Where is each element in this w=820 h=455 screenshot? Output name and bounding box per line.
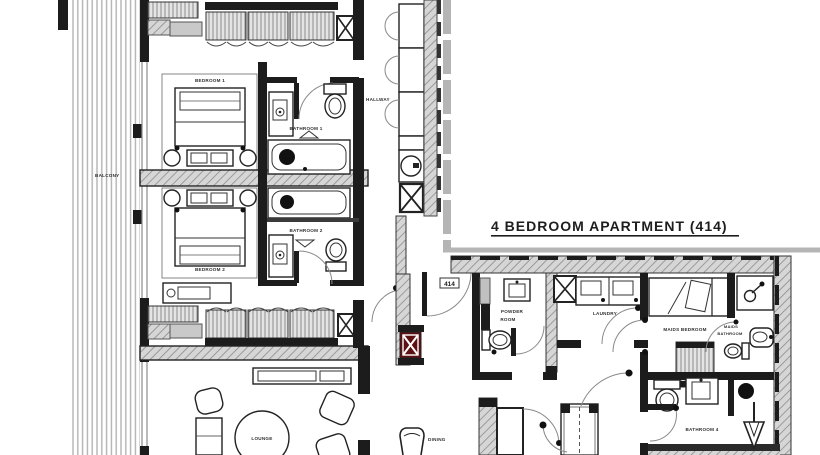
hatch-block [148,20,170,35]
bed-icon [175,88,246,151]
door-swing-arc [372,290,398,322]
hallway-label: HALLWAY [366,97,390,102]
heater-mark [413,163,419,168]
sofa-cushion [248,310,288,338]
armchair-icon [314,432,351,455]
round-table-icon [235,411,289,455]
closet-unit [148,306,198,322]
door-hinge [540,422,547,429]
closet-unit [148,2,198,18]
bathtub-icon [268,131,350,174]
sofa-cushion [290,310,334,338]
entry: 414 [372,216,471,365]
powder-label-2: ROOM [500,317,515,322]
door-swing-arc [650,410,676,441]
bathroom1-label: BATHROOM 1 [289,126,322,131]
shower-icon [737,276,773,310]
wall-cap [479,398,497,407]
wall-cap [398,325,424,332]
balcony-wall-segment [58,0,68,30]
wall-segment [557,340,581,348]
sliding-window [142,62,147,455]
door-opening [353,60,364,78]
laundry-label: LAUNDRY [593,311,617,316]
side-cabinet-icon [196,418,222,455]
bottom-wall-hatch [640,451,780,455]
hallway: HALLWAY [366,0,439,216]
shower-screen [728,380,734,416]
dresser-icon [163,283,231,303]
wall-segment [640,273,648,320]
hall-hatch-wall [424,0,437,216]
bathroom-1: BATHROOM 1 [267,77,359,174]
chair-icon [400,428,424,455]
wall-cap [398,358,424,365]
floor-drain-icon [738,383,754,399]
maids-bath-label-2: BATHROOM [717,331,743,336]
sink-icon [686,378,718,404]
riser-shaft [400,332,421,358]
powder-room: POWDER ROOM [472,273,557,380]
bedroom-1: BEDROOM 1 [162,74,257,170]
duct [480,278,490,304]
wall-segment [267,77,297,83]
wall-segment [472,372,512,380]
door-hinge [642,349,648,355]
cabinet [170,22,202,36]
bathroom-2: BATHROOM 2 [267,188,359,286]
bathroom-4: BATHROOM 4 [640,372,774,455]
duct-dark [481,304,490,330]
sink-icon [504,279,530,301]
corridor-boundary [443,0,820,252]
sofa-scallops [207,42,334,46]
plan-title: 4 BEDROOM APARTMENT (414) [491,218,739,237]
wall-segment [330,77,359,83]
balcony-label: BALCONY [95,173,119,178]
window-wall [140,0,149,455]
sofa-back-rail [205,2,338,10]
wall-cap [546,366,557,374]
door-hinge [642,317,648,323]
balcony: BALCONY [58,0,142,455]
sofa-cushion [248,12,288,40]
bathroom2-label: BATHROOM 2 [289,228,322,233]
bedroom1-label: BEDROOM 1 [195,78,225,83]
slope-arrow-icon [744,402,764,448]
maids-bedroom-label: MAIDS BEDROOM [663,327,706,332]
door-leaf [497,408,523,455]
entry-door-leaf [422,272,427,316]
lounge: LOUNGE [193,346,370,455]
sofa-cushion [206,310,246,338]
powder-label-1: POWDER [501,309,524,314]
plan-title-text: 4 BEDROOM APARTMENT (414) [491,218,728,234]
lounge-label: LOUNGE [251,436,272,441]
tv-console-icon [253,368,351,384]
washer-dryer-icon [576,277,642,305]
door-opening [353,286,364,300]
door-swing-arc [581,373,633,406]
cabinet [170,324,202,338]
bedroom2-label: BEDROOM 2 [195,267,225,272]
toilet-icon [326,239,346,271]
lounge-wall [140,346,368,360]
bathtub-icon [268,188,350,218]
bed-icon [175,208,246,267]
hall-wardrobe-icon [561,404,598,455]
bedroom2-closet-row [148,306,354,346]
armchair-icon [318,389,357,427]
dining-label: DINING [428,437,446,442]
wall-segment [396,216,406,274]
door-leaf [648,404,676,410]
door-leaf [294,83,299,119]
bottom-corridor: DINING [400,370,633,455]
balcony-column [133,210,142,224]
door-swing-arc [516,326,544,354]
threshold-mark [296,240,314,247]
maids-bath-label-1: MAIDS [724,324,738,329]
sink-icon [269,235,293,277]
door-leaf [294,251,299,283]
sink-icon [750,328,773,347]
bathroom4-label: BATHROOM 4 [685,427,718,432]
balcony-column [133,124,142,138]
sofa-cushion [290,12,334,40]
wall-segment [634,340,648,348]
door-leaf [511,328,516,356]
door-hinge [673,405,679,411]
wall-segment [727,273,735,318]
wall-segment [358,346,370,394]
wall-segment [472,273,480,380]
bottom-wall [640,444,780,451]
hall-closets [385,4,424,150]
laundry-wall [546,273,576,374]
floor-plan-drawing: BALCONY BEDROOM 1 [0,0,820,455]
wall-segment [640,443,648,455]
door-hinge [626,370,633,377]
toilet-icon [324,84,346,118]
sofa-back-rail [205,338,338,346]
balcony-decking [70,0,140,455]
wall-segment [140,446,149,455]
wall-segment [640,372,648,410]
foot-bench-icon [164,150,256,166]
hatch-block [148,324,170,339]
door-hinge [734,320,739,325]
top-wardrobe-strip [148,2,354,46]
wall-segment [267,280,297,286]
sofa-cushion [206,12,246,40]
wall-segment [258,62,267,286]
top-wall [451,256,791,273]
floor-plan: BALCONY BEDROOM 1 [0,0,820,455]
armchair-icon [193,386,224,416]
wall-segment [330,280,359,286]
unit-tag: 414 [444,281,455,288]
toilet-icon [482,330,511,355]
bedroom-2: BEDROOM 2 [162,188,257,303]
bed-icon [649,278,729,316]
toilet-icon [725,343,750,359]
title-underline [491,235,739,237]
wall-segment [358,440,370,455]
foot-bench-icon [164,190,256,206]
tub-surround [267,218,359,222]
